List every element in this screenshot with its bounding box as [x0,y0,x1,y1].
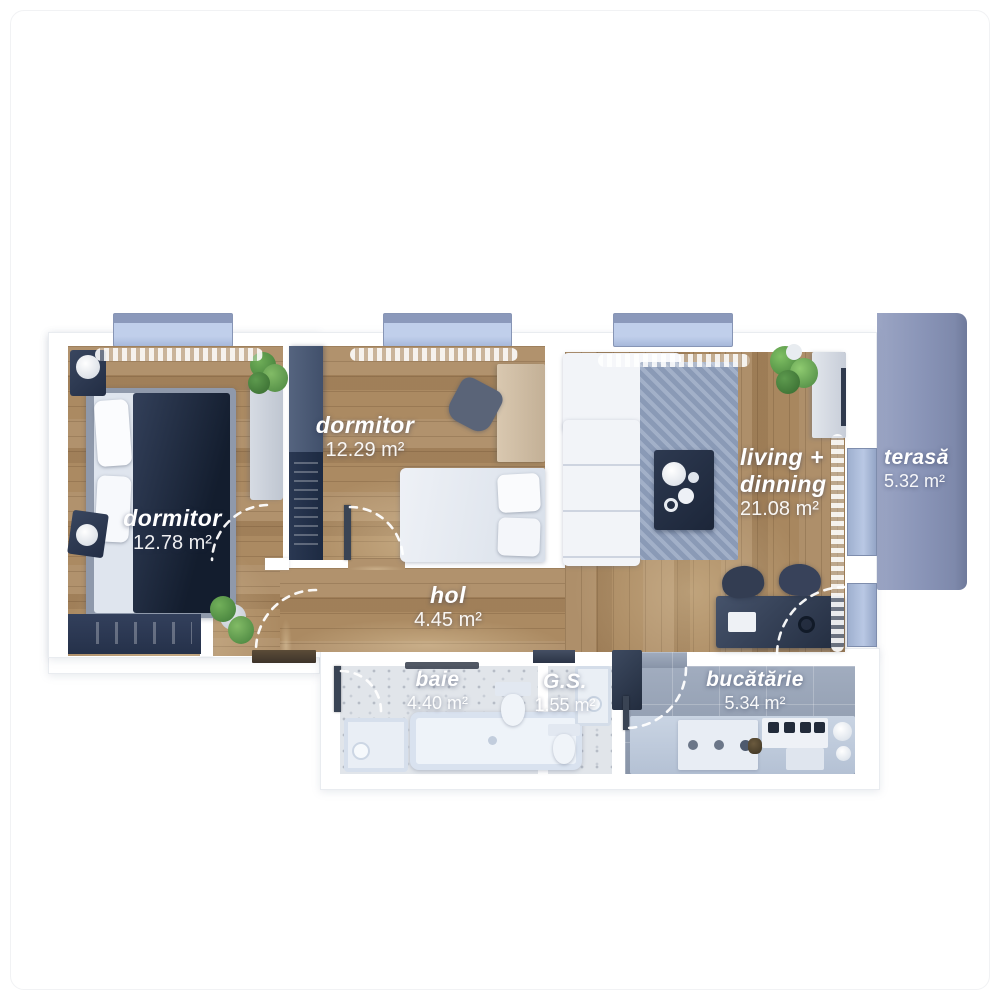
coffee-table-decor [688,472,699,483]
dining-tray [728,612,756,632]
curtain-living-top [598,354,750,367]
door-leaf-baie [334,666,341,712]
bathtub-drain [488,736,497,745]
room-area: 21.08 m² [740,498,850,522]
terrace-sliding-door [847,448,877,556]
room-area: 5.34 m² [695,693,815,714]
stove-burner [814,722,825,733]
room-area: 1.55 m² [527,695,603,716]
floor-plan: dormitor 12.78 m² dormitor 12.29 m² hol … [0,0,1000,1000]
room-area: 4.45 m² [393,609,503,633]
dormitor2-door-threshold [348,558,405,570]
vanity-sink-bowl [352,742,370,760]
label-hol: hol 4.45 m² [393,582,503,633]
room-name: terasă [884,446,966,471]
kitchen-plant-decor [748,738,762,754]
label-dormitor1: dormitor 12.78 m² [100,505,245,556]
wall-bedroom1-door-jamb [265,558,289,570]
kitchen-oven [786,748,824,770]
label-dormitor2: dormitor 12.29 m² [300,412,430,463]
room-area: 12.78 m² [100,532,245,556]
label-living: living + dinning 21.08 m² [740,444,850,522]
room-area: 12.29 m² [300,439,430,463]
hol-bend-bridge [280,568,292,652]
coffee-table-decor [678,488,694,504]
kitchen-knob [688,740,698,750]
bed-pillow [94,399,133,467]
desk-bedroom2 [497,364,545,462]
room-name: dormitor [100,505,245,532]
room-name: dinning [740,471,850,498]
bed-single-pillow [497,517,540,556]
nightstand-lamp [76,524,98,546]
curtain-bedroom1 [95,348,263,361]
wardrobe-clothes [294,460,318,552]
room-name: baie [390,668,485,693]
kitchen-sink-bowl [836,746,851,761]
curtain-bedroom2 [350,348,518,361]
entry-door-sill [252,650,316,663]
coffee-table-decor [664,498,678,512]
stove-burner [768,722,779,733]
toilet-gs-bowl [553,734,575,764]
bed-double-duvet [133,393,230,613]
coffee-table-decor [662,462,686,486]
kitchen-sink-bowl [833,722,852,741]
window-living [613,313,733,347]
plant-hol [210,594,256,650]
label-baie: baie 4.40 m² [390,668,485,714]
room-name: G.S. [527,670,603,695]
sofa-seats [563,420,640,566]
bed-single-blanket [400,468,436,562]
room-area: 4.40 m² [390,693,485,714]
kitchen-knob [714,740,724,750]
room-area: 5.32 m² [884,471,966,492]
dining-bowl [798,616,815,633]
label-bucatarie: bucătărie 5.34 m² [695,668,815,714]
window-bedroom1 [113,313,233,347]
gs-door-sill [533,650,575,663]
dresser-decor [80,622,192,644]
plant-living [768,342,820,400]
label-gs: G.S. 1.55 m² [527,670,603,716]
terrace-sliding-door [847,583,877,647]
room-name: dormitor [300,412,430,439]
window-bedroom2 [383,313,512,347]
wardrobe-bedroom1 [250,383,283,500]
room-name: hol [393,582,503,609]
tv-screen [841,368,846,426]
toilet-baie-bowl [501,694,525,726]
door-leaf-bucatarie [623,696,629,730]
room-name: living + [740,444,850,471]
room-name: bucătărie [695,668,815,693]
door-leaf-bedroom2 [344,505,351,560]
bed-single-pillow [497,473,541,513]
stove-burner [800,722,811,733]
stove-burner [784,722,795,733]
label-terasa: terasă 5.32 m² [884,446,966,492]
